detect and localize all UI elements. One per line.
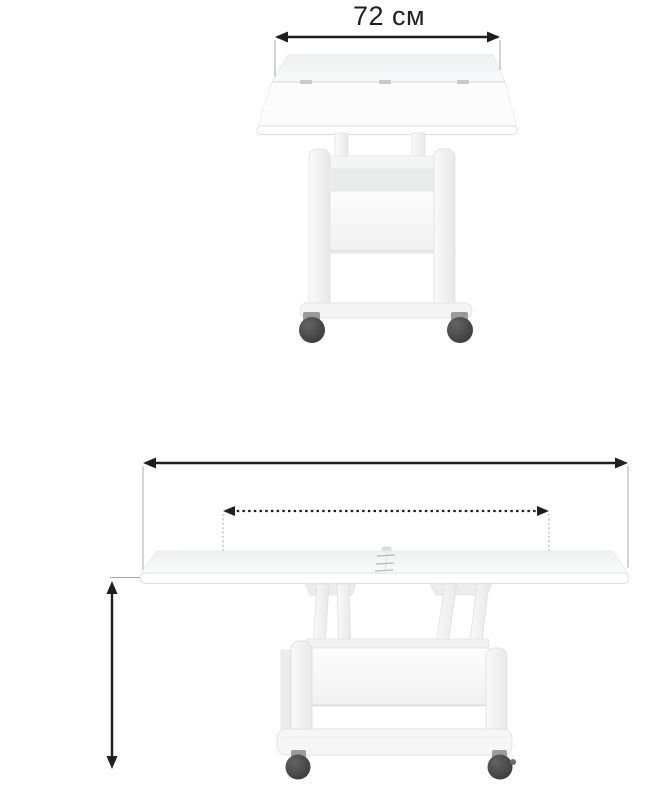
right-leg xyxy=(434,149,455,311)
folded-front-view-section: 72 см xyxy=(0,0,664,400)
unfolded-tabletop xyxy=(141,547,629,584)
folded-tabletop xyxy=(257,55,517,135)
left-caster xyxy=(299,317,325,343)
folded-table-illustration xyxy=(0,0,664,400)
unfolded-side-view-section: В разложенном виде — 172 см В сложенном … xyxy=(0,400,664,800)
bottom-platform xyxy=(300,303,472,318)
product-dimension-diagram: 72 см xyxy=(0,0,664,800)
base-box-side xyxy=(306,648,489,706)
folded-table-base xyxy=(300,133,472,318)
unfolded-table-illustration xyxy=(0,420,664,800)
left-caster xyxy=(286,755,311,780)
height-dimension-arrow xyxy=(107,578,291,773)
bottom-platform xyxy=(277,729,512,755)
left-leg xyxy=(309,149,330,311)
right-caster xyxy=(488,755,513,780)
base-box-front xyxy=(328,191,447,253)
right-caster xyxy=(447,317,473,343)
unfolded-table-base xyxy=(277,639,512,755)
folded-width-dimension-arrow xyxy=(223,506,549,551)
